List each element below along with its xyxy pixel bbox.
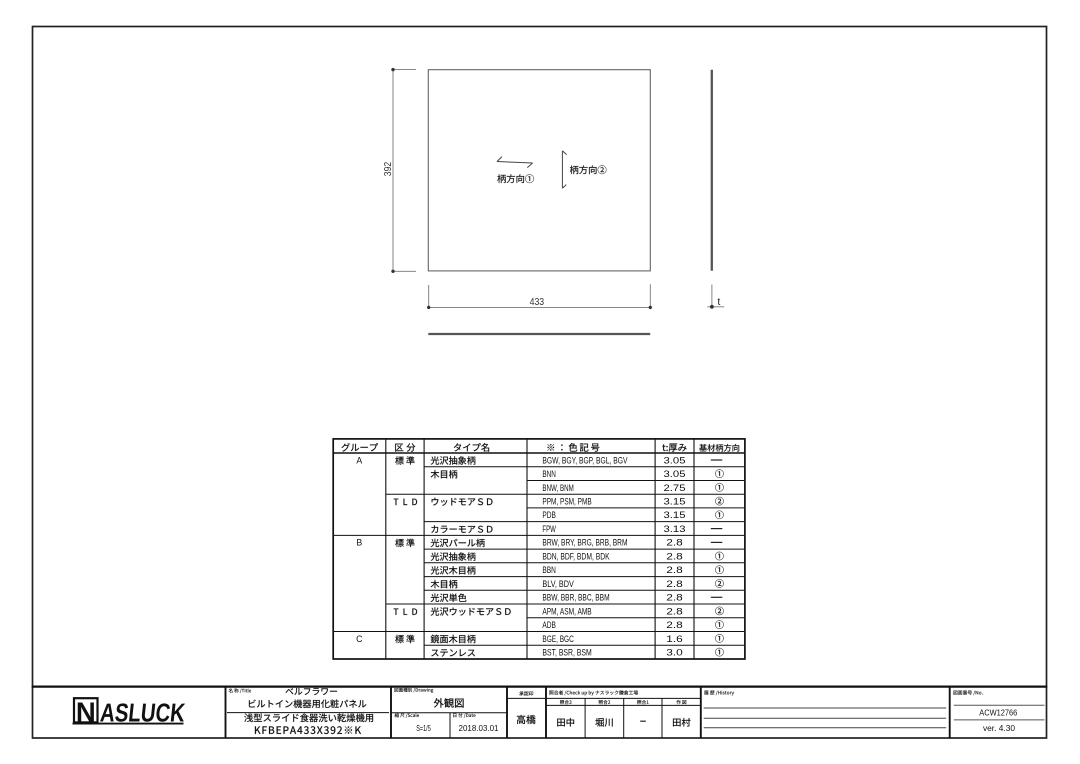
svg-text:S=1/5: S=1/5 <box>416 724 431 733</box>
svg-text:PPM, PSM, PMB: PPM, PSM, PMB <box>542 497 591 507</box>
svg-text:3.13: 3.13 <box>664 524 686 534</box>
svg-text:ACW12766: ACW12766 <box>979 708 1017 718</box>
svg-text:t: t <box>718 297 721 308</box>
svg-text:3.15: 3.15 <box>664 497 686 507</box>
svg-text:3.05: 3.05 <box>664 469 686 479</box>
svg-text:BRW, BRY, BRG, BRB, BRM: BRW, BRY, BRG, BRB, BRM <box>542 538 627 548</box>
svg-text:BNW, BNM: BNW, BNM <box>542 483 573 493</box>
svg-text:BBW, BBR, BBC, BBM: BBW, BBR, BBC, BBM <box>542 593 609 603</box>
svg-text:2.8: 2.8 <box>666 551 683 561</box>
svg-text:B: B <box>356 538 362 548</box>
svg-text:PDB: PDB <box>542 510 556 520</box>
svg-text:FPW: FPW <box>542 524 556 534</box>
svg-text:2.8: 2.8 <box>666 593 683 603</box>
svg-text:ver. 4.30: ver. 4.30 <box>983 723 1015 733</box>
svg-text:392: 392 <box>383 161 394 176</box>
svg-text:BLV, BDV: BLV, BDV <box>542 579 573 589</box>
svg-text:2.75: 2.75 <box>664 483 686 493</box>
svg-text:C: C <box>356 634 363 644</box>
svg-text:BST, BSR, BSM: BST, BSR, BSM <box>542 648 591 658</box>
svg-text:2.8: 2.8 <box>666 620 683 630</box>
svg-text:2018.03.01: 2018.03.01 <box>459 724 500 733</box>
svg-text:APM, ASM, AMB: APM, ASM, AMB <box>542 606 591 616</box>
svg-text:3.0: 3.0 <box>666 648 683 658</box>
svg-text:ADB: ADB <box>542 620 556 630</box>
svg-text:2.8: 2.8 <box>666 538 683 548</box>
svg-text:433: 433 <box>530 297 545 308</box>
svg-text:BGE, BGC: BGE, BGC <box>542 634 574 644</box>
svg-text:BNN: BNN <box>542 469 556 479</box>
svg-text:BBN: BBN <box>542 565 556 575</box>
svg-text:BDN, BDF, BDM, BDK: BDN, BDF, BDM, BDK <box>542 551 609 561</box>
svg-text:3.05: 3.05 <box>664 455 686 465</box>
svg-text:2.8: 2.8 <box>666 606 683 616</box>
svg-text:BGW, BGY, BGP, BGL, BGV: BGW, BGY, BGP, BGL, BGV <box>542 455 627 465</box>
svg-text:1.6: 1.6 <box>666 634 683 644</box>
svg-text:2.8: 2.8 <box>666 579 683 589</box>
svg-text:3.15: 3.15 <box>664 510 686 520</box>
svg-text:A: A <box>356 455 362 465</box>
svg-text:2.8: 2.8 <box>666 565 683 575</box>
